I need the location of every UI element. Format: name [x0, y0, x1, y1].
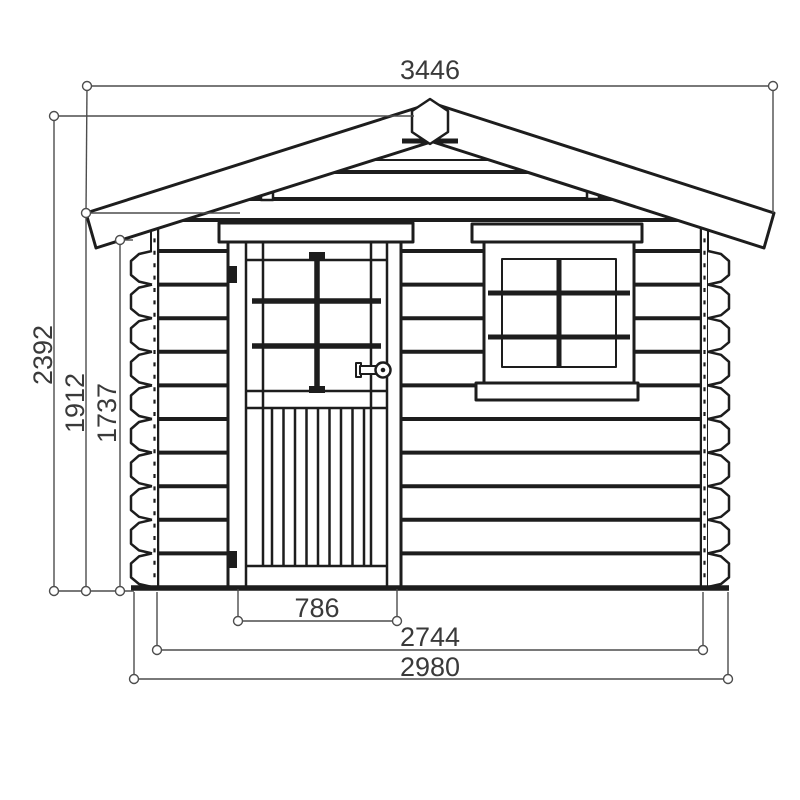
elevation-canvas: 3446 2392 1912 1737 786 2744 2980 [0, 0, 800, 800]
shed-elevation-drawing: 3446 2392 1912 1737 786 2744 2980 [0, 0, 800, 800]
door [219, 223, 413, 587]
dim-label-wall-length: 2744 [400, 622, 460, 652]
window-sill [476, 383, 638, 400]
dim-label-door-width: 786 [294, 593, 339, 623]
door-hinge-top [228, 266, 237, 283]
dim-label-door-height: 1737 [92, 383, 122, 443]
window [472, 224, 642, 400]
dim-label-wall-height: 1912 [60, 373, 90, 433]
door-hinge-bottom [228, 551, 237, 568]
log-ends-right [708, 251, 729, 587]
window-lintel [472, 224, 642, 242]
dim-label-overall-height: 2392 [28, 325, 58, 385]
log-ends-left [131, 251, 152, 587]
door-muntin-cap-top [309, 252, 325, 259]
door-lintel [219, 223, 413, 242]
dim-label-roof-width: 3446 [400, 55, 460, 85]
dim-label-overall-width: 2980 [400, 652, 460, 682]
wall [131, 220, 729, 587]
